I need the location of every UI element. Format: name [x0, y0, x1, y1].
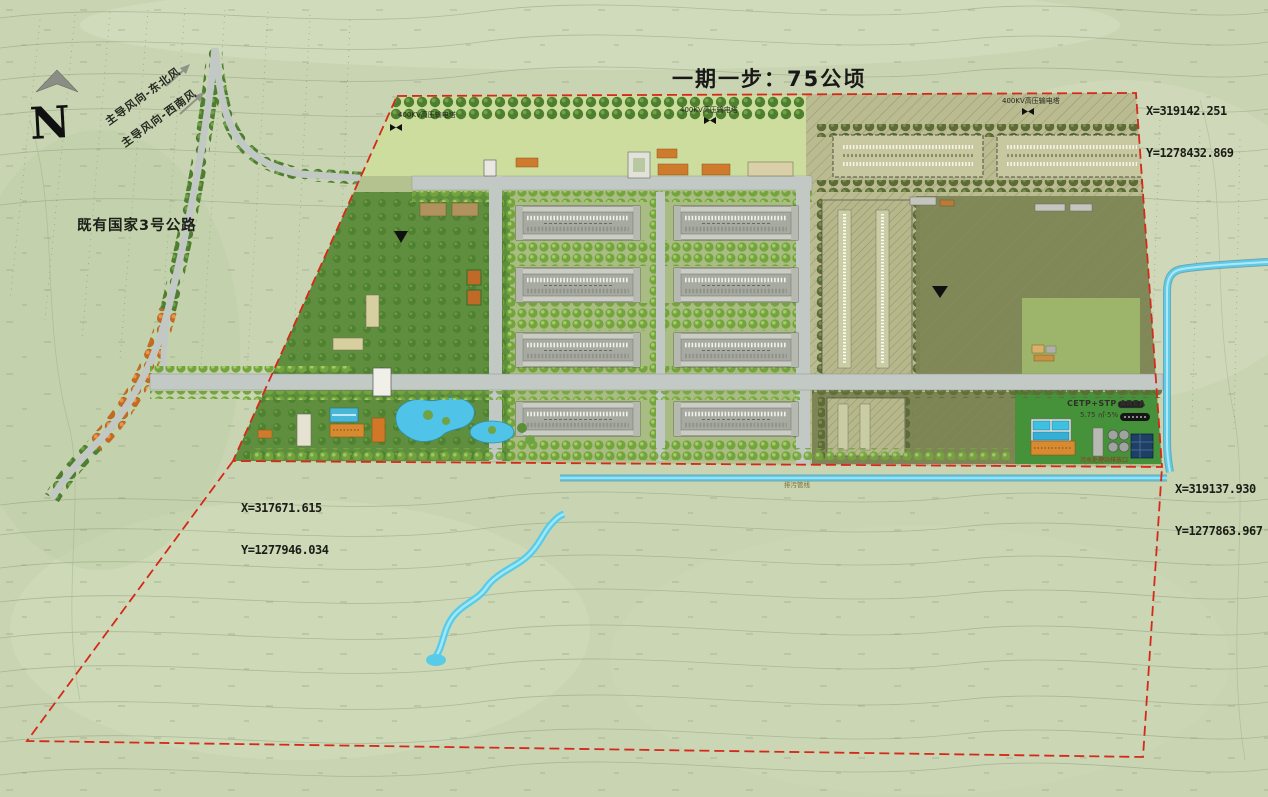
coordinate-x: X=319142.251 — [1146, 104, 1233, 118]
coordinate-label-northeast: X=319142.251 Y=1278432.869 — [1146, 76, 1233, 174]
coordinate-x: X=317671.615 — [241, 501, 328, 515]
transmission-tower-label: 400KV高压输电塔 — [1002, 96, 1060, 106]
coordinate-x: X=319137.930 — [1175, 482, 1262, 496]
coordinate-y: Y=1277946.034 — [241, 543, 328, 557]
coordinate-label-west: X=317671.615 Y=1277946.034 — [241, 473, 328, 571]
coordinate-y: Y=1278432.869 — [1146, 146, 1233, 160]
site-gate — [373, 368, 391, 396]
coordinate-y: Y=1277863.967 — [1175, 524, 1262, 538]
highway-label: 既有国家3号公路 — [77, 214, 197, 235]
master-plan-screenshot: 一期一步：75公顷 N 主导风向-东北风 主导风向-西南风 既有国家3号公路 X… — [0, 0, 1268, 797]
cetp-area-sublabel: 5.75 ㎡·5% — [1080, 410, 1118, 420]
coordinate-label-east: X=319137.930 Y=1277863.967 — [1175, 454, 1262, 552]
transmission-tower-label: 400KV高压输电塔 — [680, 105, 738, 115]
pipeline-label: 排污管线 — [784, 479, 810, 489]
cetp-area-label: CETP+STP AREA — [1067, 399, 1145, 408]
plan-title: 一期一步：75公顷 — [672, 63, 866, 93]
north-arrow-letter: N — [29, 101, 71, 147]
outfall-label: 污水处理站排放口 — [1080, 455, 1128, 464]
transmission-tower-label: 400KV高压输电塔 — [398, 110, 456, 120]
